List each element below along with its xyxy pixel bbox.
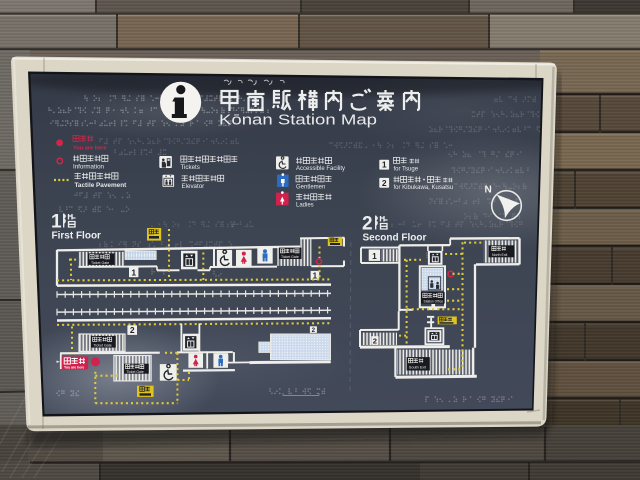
svg-text:Accessible Facility: Accessible Facility [296,166,345,172]
svg-text:Gentlemen: Gentlemen [296,184,325,190]
svg-text:Ticket Gate: Ticket Gate [91,261,109,265]
svg-text:1: 1 [51,212,62,233]
svg-text:Ladies: Ladies [296,203,314,209]
svg-text:You are here: You are here [73,146,106,152]
svg-text:Station Office: Station Office [424,299,444,303]
svg-text:1: 1 [372,251,377,261]
svg-text:for Kibukawa, Kusatsu: for Kibukawa, Kusatsu [394,185,454,191]
svg-text:Kōnan Station Map: Kōnan Station Map [219,112,377,129]
svg-text:2: 2 [373,337,377,346]
svg-text:1: 1 [131,267,136,277]
svg-text:2: 2 [382,178,387,188]
svg-text:Ticket Gate: Ticket Gate [94,344,112,348]
svg-text:Ticket Gate: Ticket Gate [281,255,299,259]
svg-text:N: N [485,185,492,196]
svg-text:Information: Information [73,163,105,170]
svg-text:2: 2 [130,325,135,335]
svg-text:1: 1 [382,160,387,170]
svg-text:Ticket Gate: Ticket Gate [127,370,144,374]
svg-text:First Floor: First Floor [52,231,102,242]
svg-text:You are here: You are here [64,365,84,369]
svg-text:for Tsuge: for Tsuge [394,167,419,173]
svg-text:Tickets: Tickets [181,164,200,171]
svg-text:Second Floor: Second Floor [363,233,427,244]
svg-text:North Exit: North Exit [492,253,507,257]
svg-text:South Exit: South Exit [409,366,427,370]
svg-text:Elevator: Elevator [182,183,205,190]
svg-text:2: 2 [362,214,373,235]
svg-text:2: 2 [312,327,316,334]
svg-text:Tactile Pavement: Tactile Pavement [75,182,128,189]
